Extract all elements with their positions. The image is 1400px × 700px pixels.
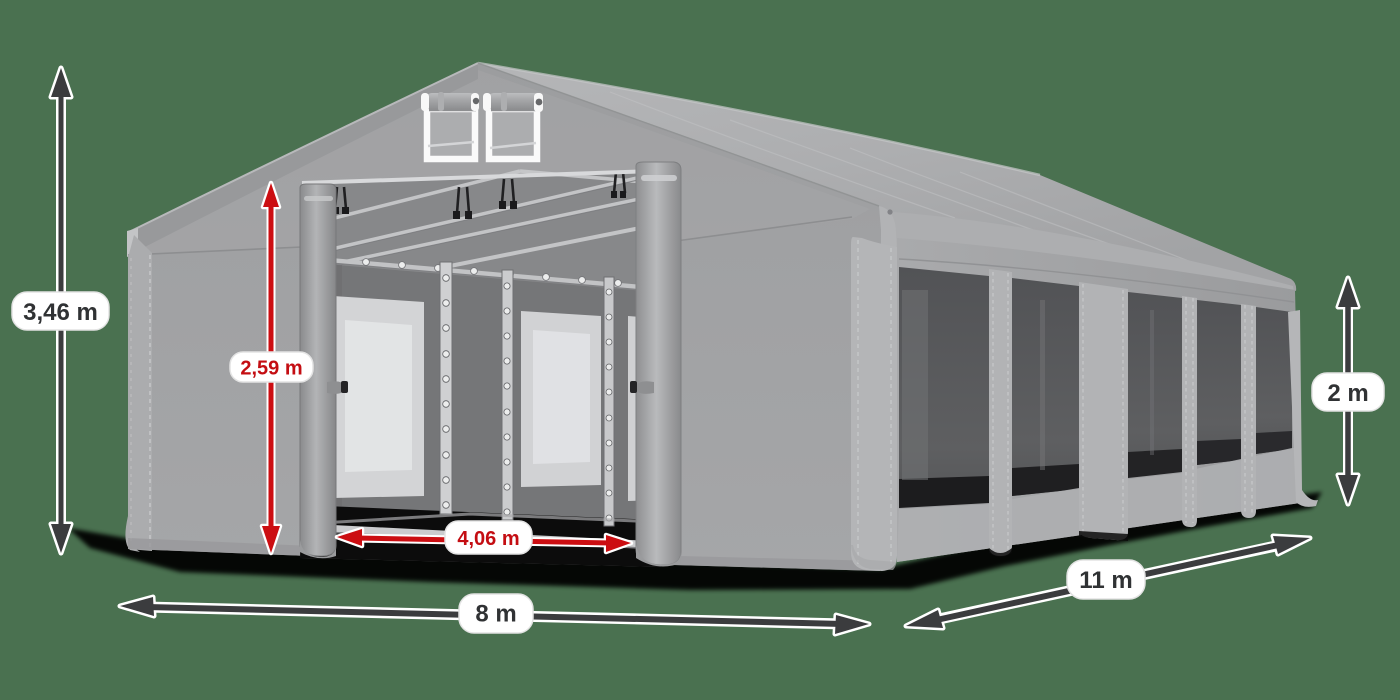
svg-text:4,06 m: 4,06 m — [457, 528, 519, 550]
svg-text:3,46 m: 3,46 m — [23, 299, 98, 326]
svg-text:2,59 m: 2,59 m — [240, 358, 302, 380]
svg-text:11 m: 11 m — [1079, 567, 1132, 594]
svg-text:8 m: 8 m — [475, 601, 516, 628]
svg-text:2 m: 2 m — [1327, 380, 1368, 407]
